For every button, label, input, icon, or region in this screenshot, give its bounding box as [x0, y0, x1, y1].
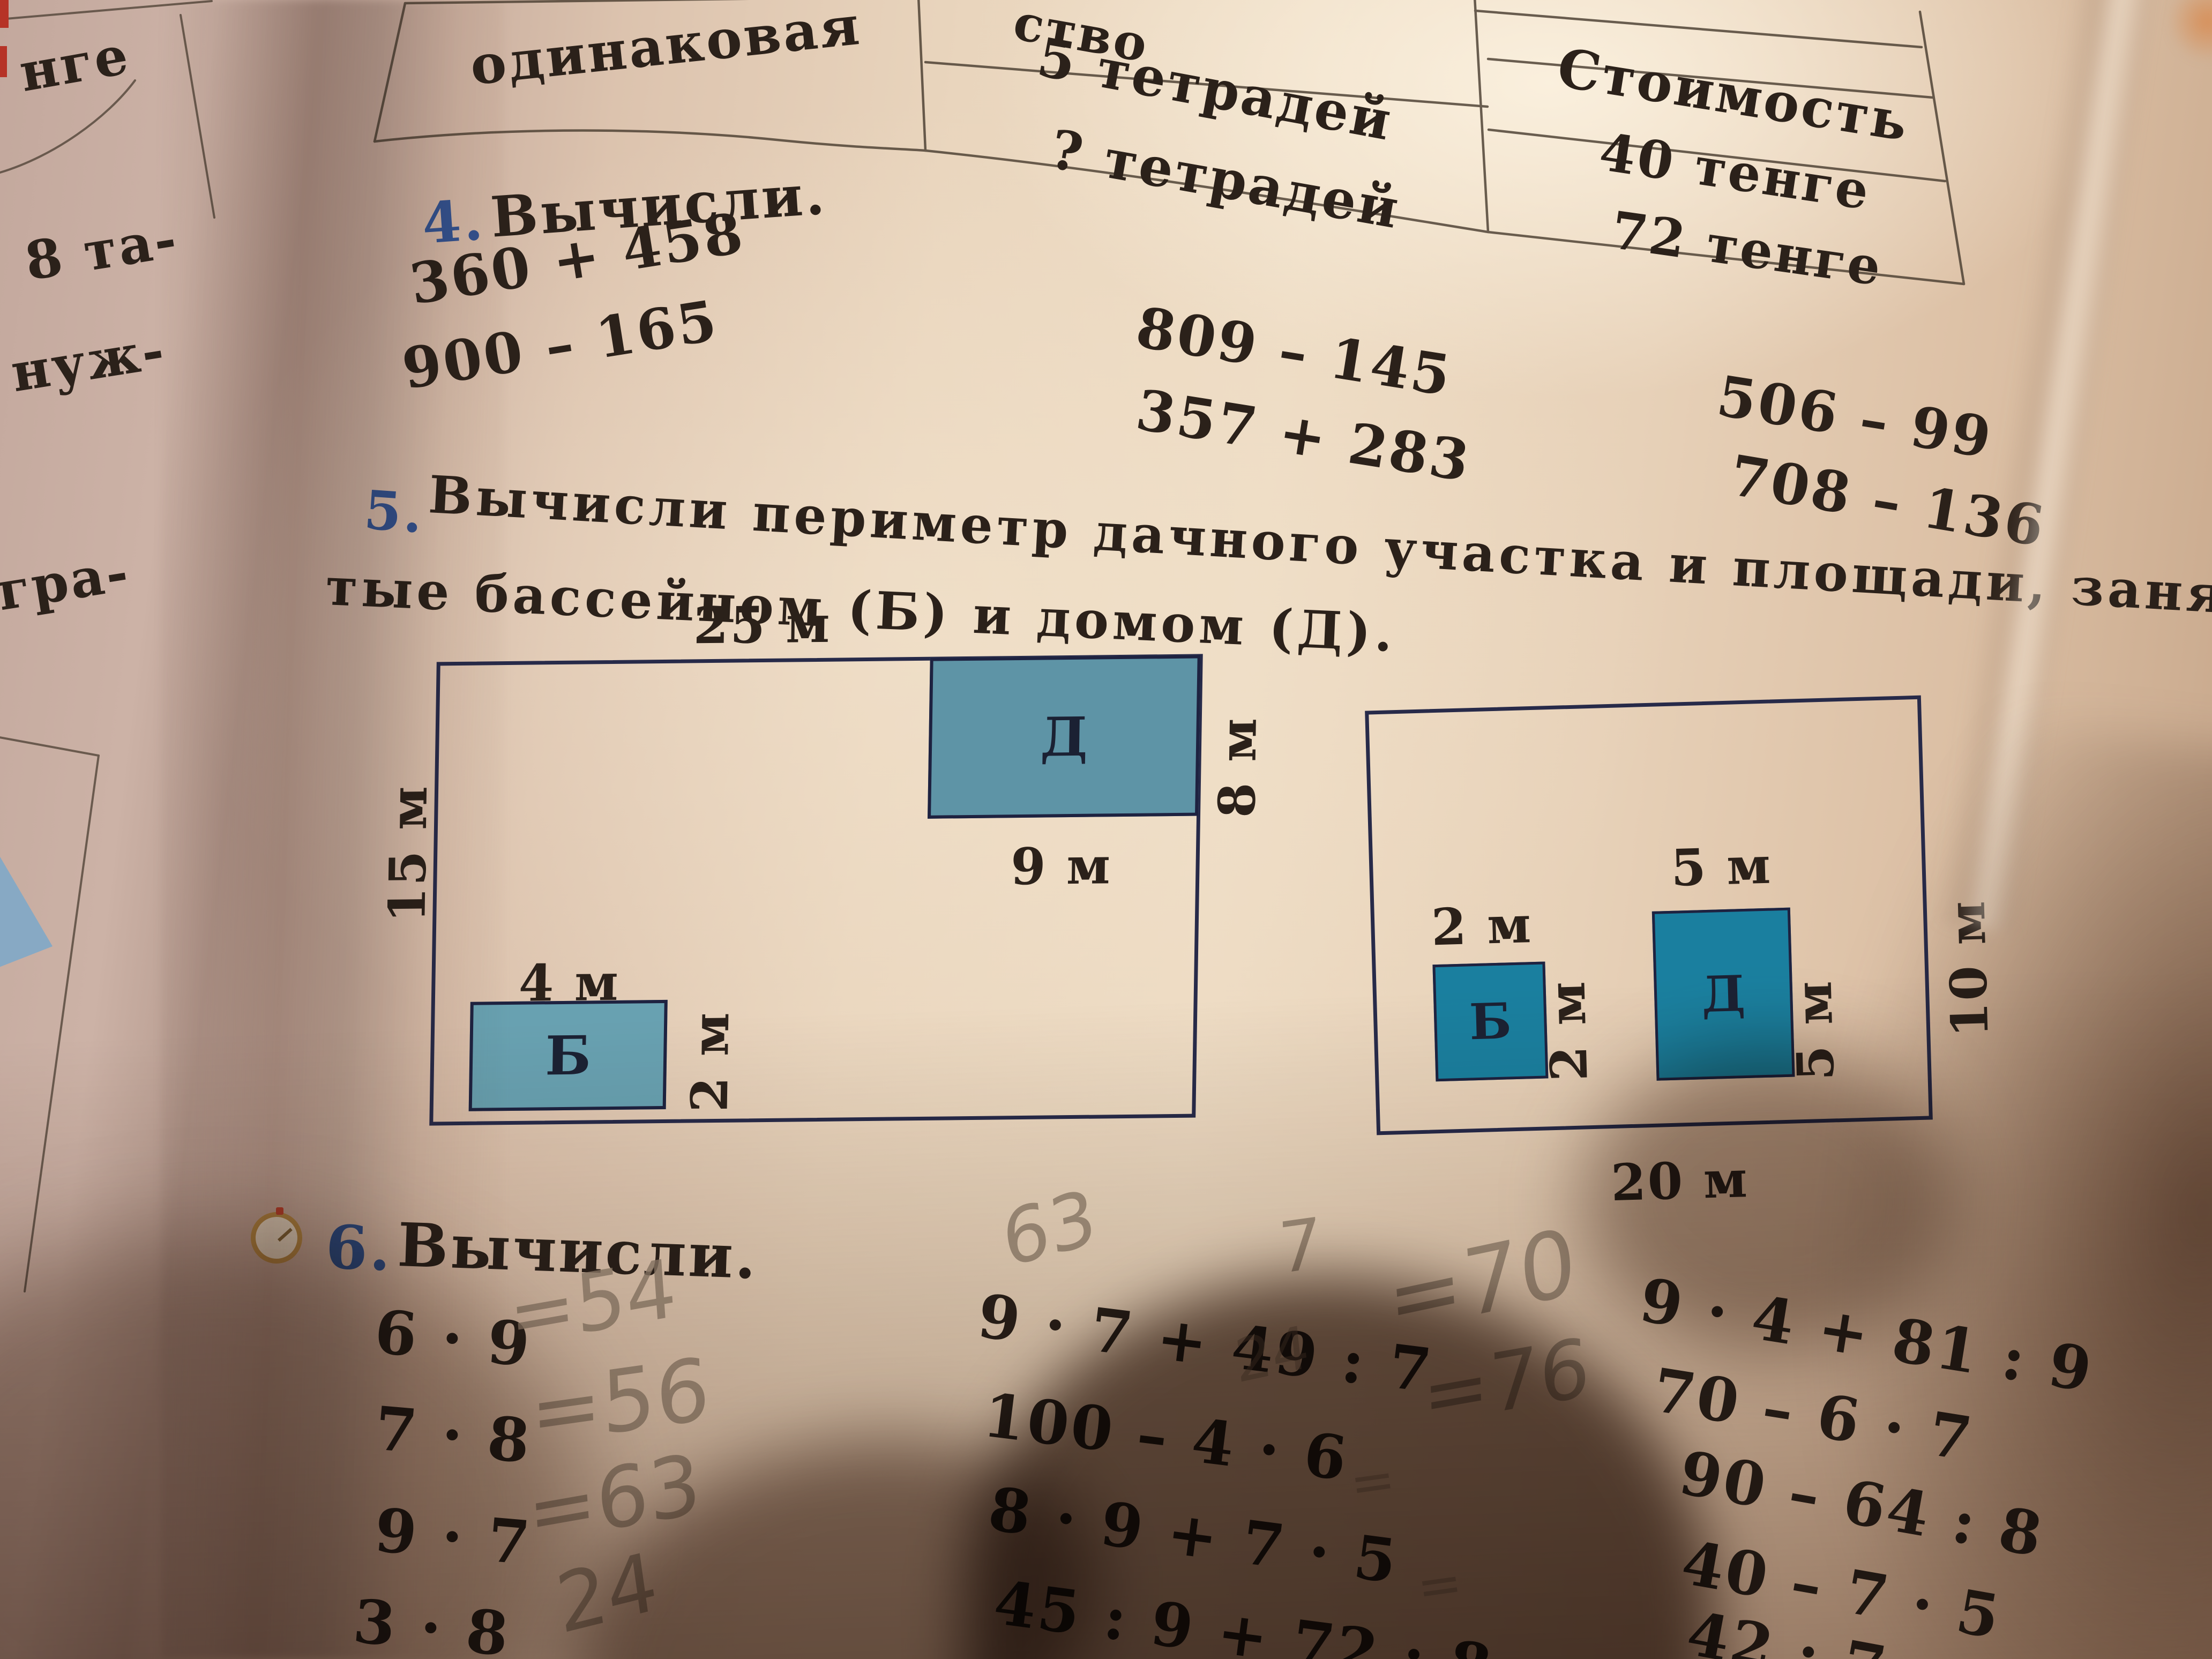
red-cover-sliver [0, 46, 7, 77]
task5-text-line2: тые бассейном (Б) и домом (Д). [325, 556, 1398, 663]
pool-letter: Б [1469, 992, 1513, 1051]
pool-rect: Б [469, 1000, 668, 1111]
house-letter: Д [1701, 965, 1746, 1023]
warm-corner-highlight [2170, 0, 2212, 64]
timer-button [276, 1207, 283, 1215]
house-rect: Д [1652, 908, 1795, 1081]
pool-height-label: 2 м [681, 1011, 741, 1112]
house-width-label: 5 м [1670, 836, 1773, 898]
textbook-photo: нге 8 та- нуж- гра- ство одинаковая 5 те… [0, 0, 2212, 1659]
left-page-text-fragment: нуж- [7, 319, 170, 404]
left-page-picture-triangle [0, 853, 53, 968]
right-plot-diagram: Б 2 м 2 м Д 5 м 5 м 10 м 20 м [1365, 696, 1933, 1135]
timer-hand [278, 1228, 293, 1242]
left-plot-diagram: 25 м 15 м Д 9 м 8 м Б 4 м 2 м [429, 654, 1203, 1125]
pencil-note: 63 [998, 1173, 1101, 1285]
red-cover-sliver [0, 0, 9, 28]
left-page-text-fragment: гра- [0, 541, 134, 623]
left-plot-width-label: 25 м [693, 595, 832, 656]
left-page-text-fragment: нге [15, 24, 134, 104]
pencil-answer: = [1346, 1447, 1399, 1516]
left-plot-height-label: 15 м [378, 784, 439, 923]
pool-rect: Б [1432, 961, 1548, 1081]
house-rect: Д [928, 655, 1201, 818]
house-height-label: 8 м [1208, 716, 1268, 818]
pool-letter: Б [545, 1023, 592, 1087]
pool-height-label: 2 м [1537, 979, 1599, 1082]
task6-expression: 3 · 8 [350, 1586, 513, 1659]
task5-number: 5. [362, 478, 427, 545]
house-height-label: 5 м [1784, 979, 1845, 1082]
pencil-answer: = [1413, 1551, 1466, 1619]
pool-width-label: 2 м [1431, 895, 1534, 957]
right-plot-width-label: 20 м [1610, 1150, 1750, 1213]
task6-number: 6. [325, 1212, 394, 1284]
task6-expression: 100 – 4 · 6 [980, 1380, 1352, 1494]
right-plot-height-label: 10 м [1937, 899, 2000, 1038]
house-width-label: 9 м [1010, 836, 1112, 896]
timer-icon [251, 1212, 302, 1264]
pencil-note: 7 [1276, 1202, 1323, 1290]
table-cell-price: одинаковая [467, 0, 864, 98]
task6-expression: 7 · 8 [372, 1393, 534, 1477]
left-page-text-fragment: 8 та- [21, 208, 183, 293]
house-letter: Д [1040, 705, 1088, 769]
pool-width-label: 4 м [518, 953, 621, 1013]
task6-expression: 9 · 7 [372, 1495, 534, 1579]
